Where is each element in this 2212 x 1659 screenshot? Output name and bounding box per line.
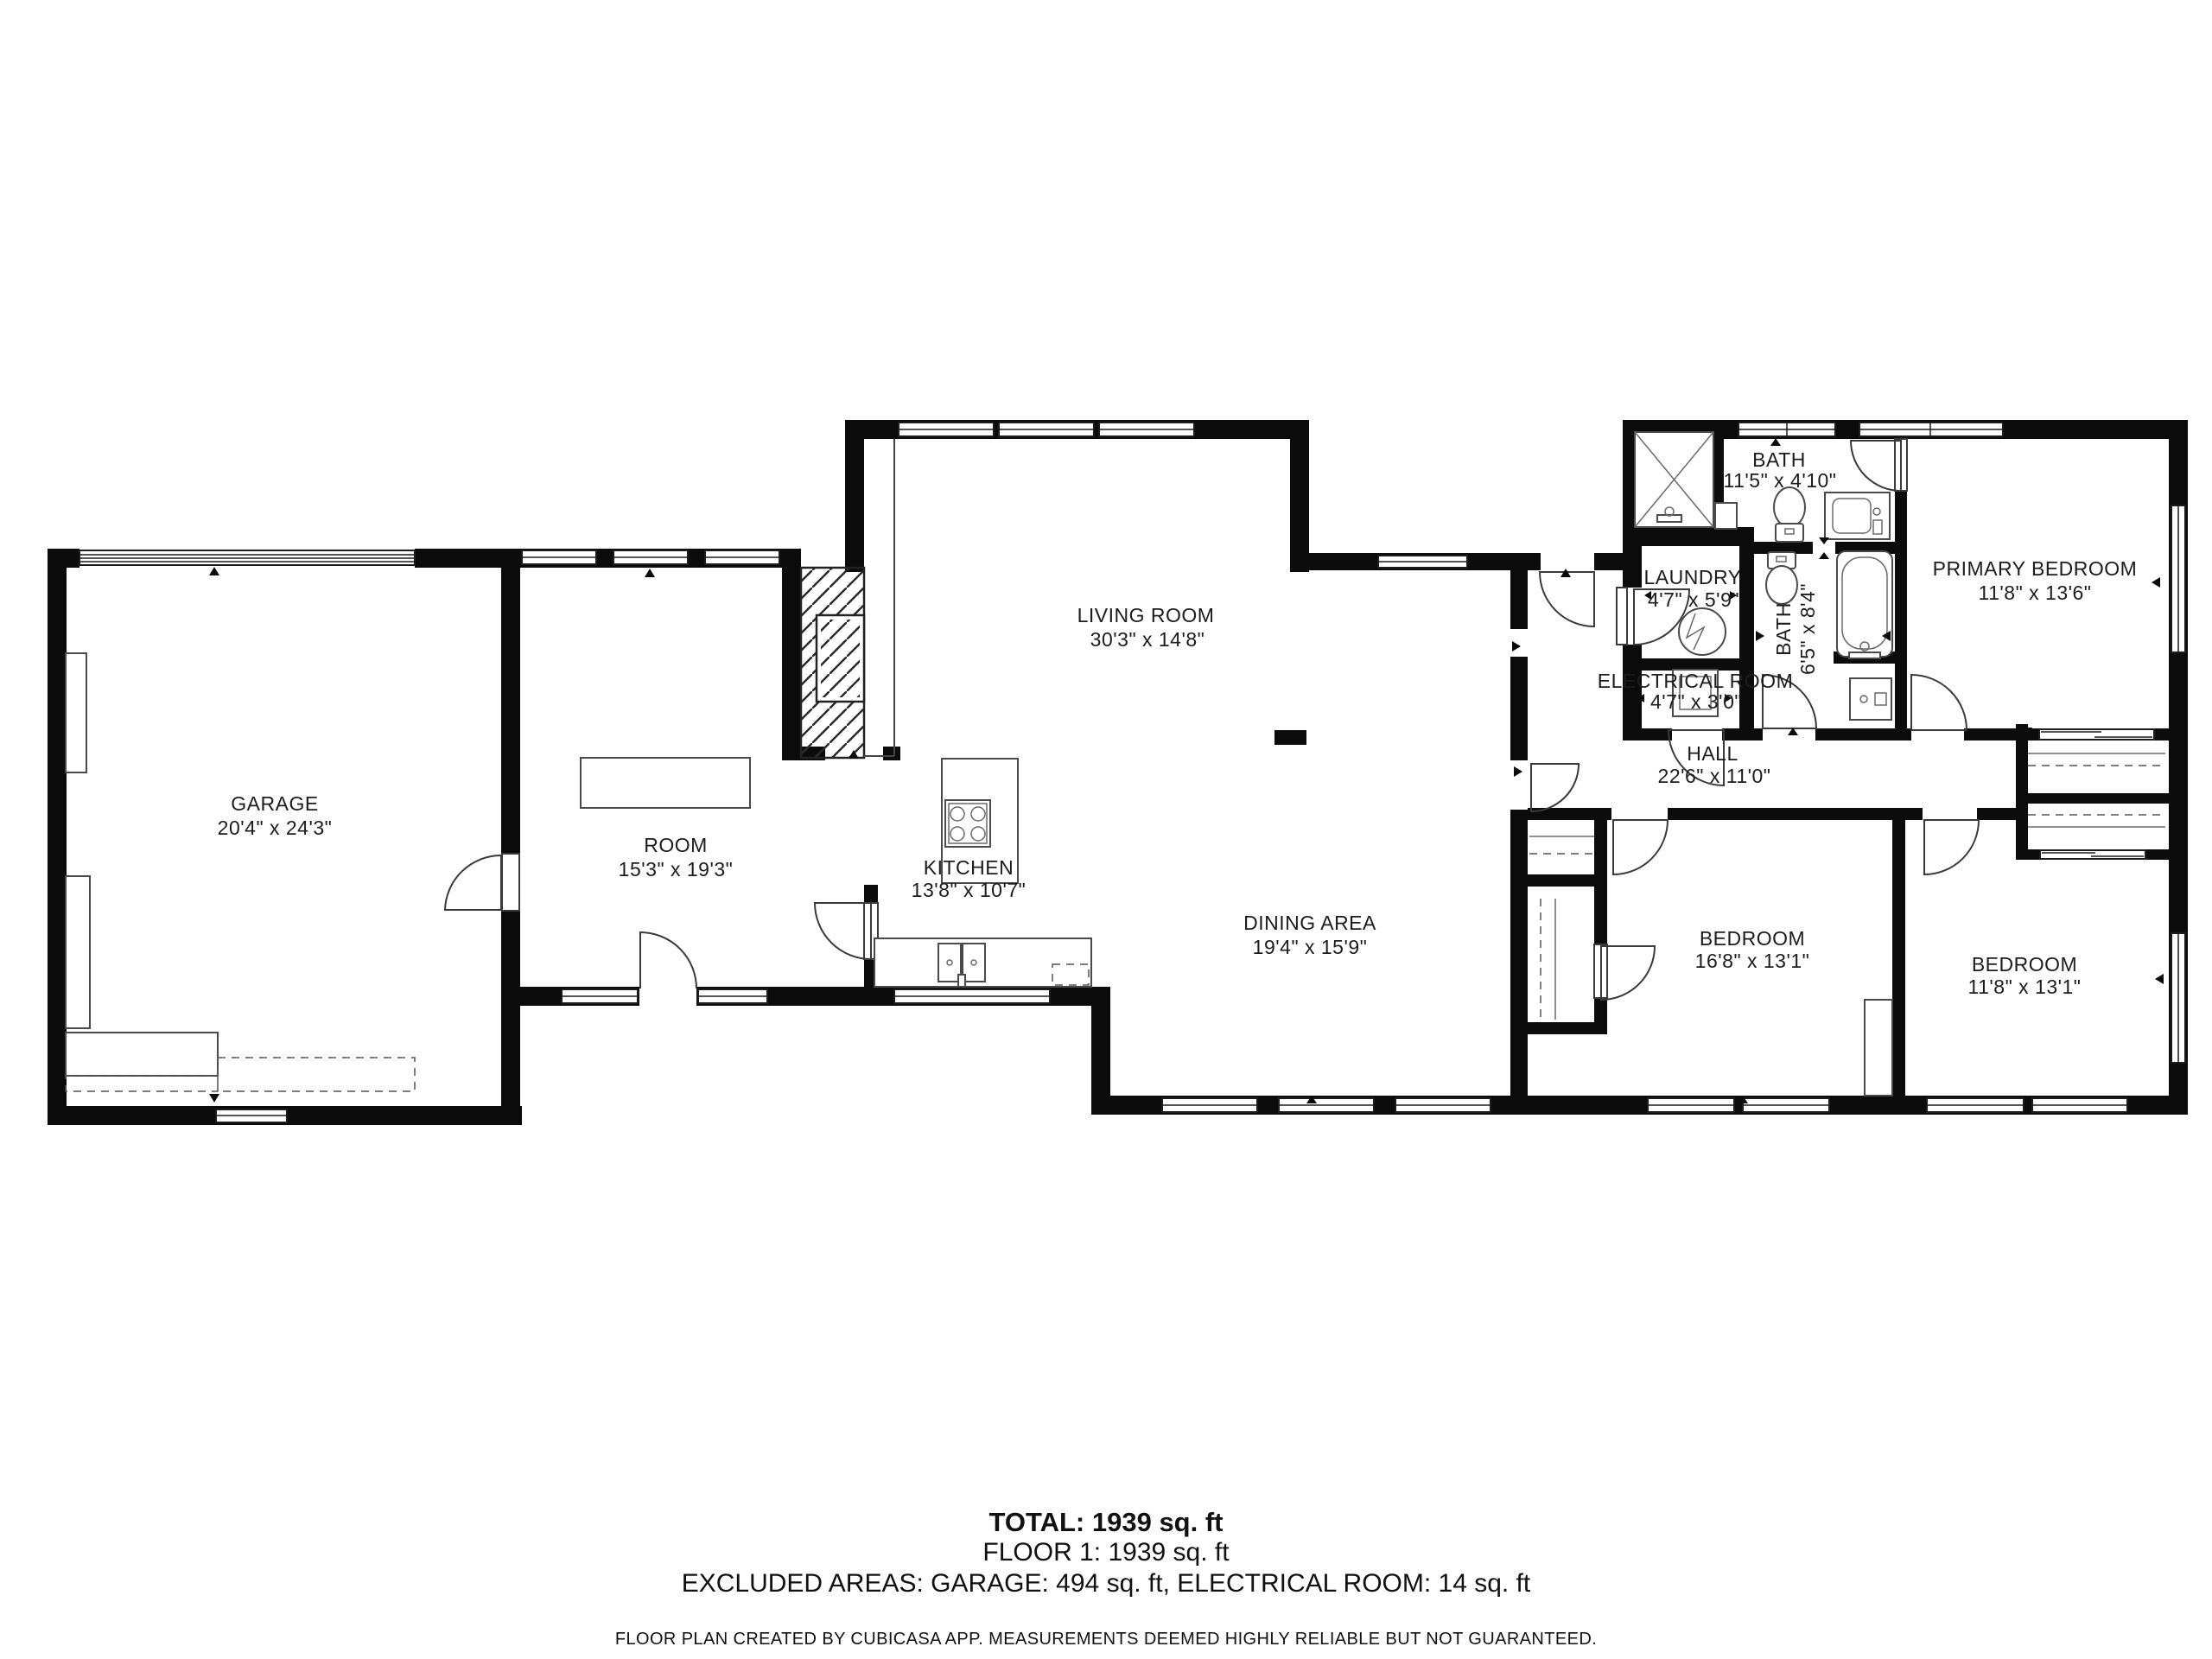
window: [1378, 556, 1467, 568]
washing-machine: [1679, 608, 1726, 655]
floor-plan-drawing: GARAGE 20'4" x 24'3" ROOM 15'3" x 19'3" …: [0, 0, 2212, 1659]
window: [1927, 1098, 2024, 1112]
bathtub: [1837, 551, 1892, 658]
window: [999, 423, 1094, 436]
room-label-hall: HALL: [1687, 742, 1738, 765]
toilet: [1774, 487, 1805, 542]
room-label-primary-bedroom: PRIMARY BEDROOM: [1933, 557, 2138, 580]
room-dims-laundry: 4'7" x 5'9": [1648, 588, 1739, 611]
bathroom-sink: [1850, 678, 1891, 720]
room-label-bath-2: BATH: [1772, 602, 1795, 656]
room-counter: [581, 758, 750, 808]
window: [1738, 423, 1835, 436]
window: [1099, 423, 1194, 436]
total-area-text: TOTAL: 1939 sq. ft: [0, 1507, 2212, 1538]
door-arc: [1924, 820, 1979, 874]
window: [894, 989, 1050, 1003]
kitchen-sink: [938, 944, 985, 987]
door-arc: [1613, 820, 1668, 874]
door-arc: [1851, 441, 1901, 491]
room-label-kitchen: KITCHEN: [924, 856, 1014, 879]
room-dims-garage: 20'4" x 24'3": [218, 817, 333, 839]
window: [705, 550, 779, 564]
door-leaf: [1617, 588, 1627, 645]
window: [1279, 1098, 1374, 1112]
door-gap: [1541, 553, 1594, 570]
toilet: [1766, 552, 1797, 604]
door-arc: [445, 855, 501, 910]
room-label-garage: GARAGE: [231, 792, 318, 815]
window: [1743, 1098, 1829, 1112]
door-arc: [1540, 572, 1594, 626]
garage-shelf: [66, 876, 90, 1028]
window: [2171, 933, 2185, 1063]
room-label-electrical: ELECTRICAL ROOM: [1598, 670, 1793, 692]
door-gap: [639, 987, 696, 1006]
garage-door: [79, 550, 415, 565]
fixtures: [66, 432, 2165, 1096]
window: [1859, 423, 2003, 436]
room-dims-bath-1: 11'5" x 4'10": [1724, 469, 1837, 492]
room-label-bedroom-1: BEDROOM: [1700, 927, 1805, 950]
window: [1162, 1098, 1257, 1112]
window: [1395, 1098, 1491, 1112]
stove: [945, 800, 990, 847]
door-leaf: [502, 854, 519, 911]
door-arc: [1601, 946, 1655, 1000]
closet-interior: [2028, 753, 2165, 827]
garage-workbench: [66, 1033, 218, 1076]
room-label-living: LIVING ROOM: [1077, 604, 1215, 626]
room-dims-living: 30'3" x 14'8": [1090, 628, 1205, 651]
door-arc: [815, 903, 871, 959]
floor1-area-text: FLOOR 1: 1939 sq. ft: [0, 1538, 2212, 1567]
room-dims-electrical: 4'7" x 3'0": [1650, 690, 1742, 713]
bathroom-sink: [1825, 493, 1890, 539]
excluded-areas-text: EXCLUDED AREAS: GARAGE: 494 sq. ft, ELEC…: [0, 1569, 2212, 1599]
room-label-bath-1: BATH: [1752, 448, 1806, 471]
window: [216, 1109, 287, 1122]
door-gap: [1510, 760, 1528, 810]
door-arc: [1531, 764, 1579, 811]
garage-shelf: [66, 653, 86, 772]
room-dims-dining: 19'4" x 15'9": [1253, 936, 1368, 958]
room-label-dining: DINING AREA: [1243, 912, 1376, 934]
room-dims-kitchen: 13'8" x 10'7": [912, 879, 1027, 901]
window: [698, 989, 767, 1003]
disclaimer-text: FLOOR PLAN CREATED BY CUBICASA APP. MEAS…: [0, 1630, 2212, 1649]
garage-storage-dashed: [218, 1058, 415, 1091]
closet-interior: [1529, 836, 1594, 1020]
room-dims-bath-2: 6'5" x 8'4": [1796, 583, 1819, 675]
window: [2032, 1098, 2127, 1112]
window: [899, 423, 994, 436]
room-dims-bedroom-1: 16'8" x 13'1": [1695, 950, 1810, 972]
sliding-door: [2040, 850, 2145, 859]
window: [1648, 1098, 1734, 1112]
room-dims-primary-bedroom: 11'8" x 13'6": [1979, 582, 2092, 604]
room-label-laundry: LAUNDRY: [1644, 566, 1742, 588]
garage-storage-dashed: [66, 1076, 218, 1091]
room-label-bedroom-2: BEDROOM: [1972, 953, 2077, 976]
door-arc: [1911, 675, 1967, 730]
room-dims-room: 15'3" x 19'3": [619, 858, 734, 880]
room-label-room: ROOM: [644, 834, 708, 856]
room-dims-hall: 22'6" x 11'0": [1658, 765, 1771, 787]
door-arc: [640, 932, 696, 988]
room-dims-bedroom-2: 11'8" x 13'1": [1968, 976, 2082, 998]
window: [2171, 505, 2185, 652]
window: [562, 989, 638, 1003]
sliding-door: [2039, 729, 2154, 740]
closet: [1865, 1000, 1892, 1096]
window: [613, 550, 688, 564]
window: [522, 550, 596, 564]
